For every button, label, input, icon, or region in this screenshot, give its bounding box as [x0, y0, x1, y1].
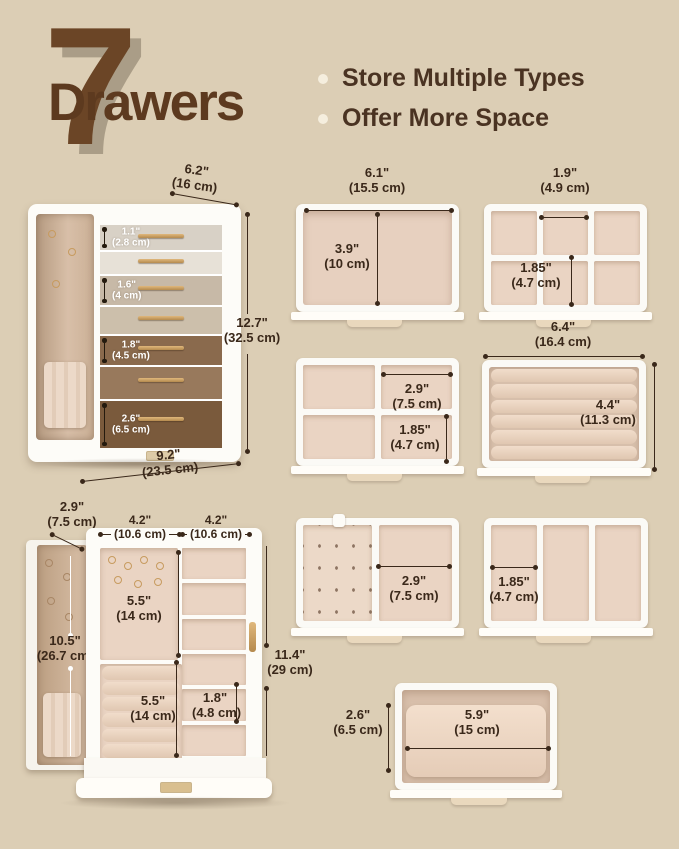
tray6-grid — [491, 525, 641, 621]
tray3-cell-depth-line — [446, 416, 447, 462]
tray4-handle-tab — [535, 476, 590, 483]
tray5-cell-width-label: 2.9"(7.5 cm) — [377, 574, 451, 604]
tray2-cell-width-label: 1.9"(4.9 cm) — [527, 166, 603, 196]
tray7-height-line — [388, 705, 389, 771]
tray2-cell — [594, 261, 640, 305]
height-bracket-line — [104, 404, 105, 445]
hook-area-height-label: 5.5"(14 cm) — [112, 594, 166, 624]
tray6-cell — [595, 525, 641, 621]
dim-bottom-width: 9.2"(23.5 cm) — [130, 444, 209, 481]
door-width-label: 2.9"(7.5 cm) — [44, 500, 100, 530]
dim-line — [169, 534, 180, 535]
feature-bullet-1: Store Multiple Types — [318, 64, 585, 93]
drawer-handle — [138, 346, 184, 350]
dim-top-width: 6.2"(16 cm) — [154, 158, 237, 198]
drawer-front-6 — [100, 367, 222, 399]
tray3-handle-tab — [347, 474, 402, 481]
drawer-front-3: 1.6"(4 cm) — [100, 276, 222, 305]
tray7-handle-tab — [451, 798, 507, 805]
necklace-hook-icon — [140, 556, 148, 564]
tray3-cell — [303, 415, 375, 459]
open-box-shadow — [58, 796, 292, 810]
dim-height: 12.7"(32.5 cm) — [222, 316, 282, 346]
door-height-line-lower — [70, 668, 71, 756]
height-bracket-line — [104, 339, 105, 362]
door-hook-icon — [47, 597, 55, 605]
necklace-hook-icon — [108, 556, 116, 564]
tray2-cell — [491, 211, 537, 255]
ring-roll — [102, 729, 180, 743]
shelf-column — [182, 548, 246, 756]
tray2-cell — [594, 211, 640, 255]
bullet-dot-icon — [318, 74, 328, 84]
tray2-cell-depth-line — [571, 257, 572, 305]
shelf-cell — [182, 548, 246, 579]
tray6-handle-tab — [536, 636, 591, 643]
tray2-cell-depth-label: 1.85"(4.7 cm) — [506, 261, 566, 291]
ring-roll — [491, 369, 637, 382]
tray4-depth-line — [654, 364, 655, 470]
dim-line — [100, 534, 111, 535]
tray5-handle-tab — [347, 636, 402, 643]
necklace-hook-icon — [124, 562, 132, 570]
drawer-front-7: 2.6"(6.5 cm) — [100, 401, 222, 448]
closed-jewelry-box: 1.1"(2.8 cm) 1.6"(4 cm) 1.8"(4.5 c — [28, 204, 241, 462]
shelf-cell — [182, 619, 246, 650]
necklace-hook-icon — [48, 230, 56, 238]
tray6-cell — [543, 525, 589, 621]
tray1-front-lip — [291, 312, 464, 320]
shelf-cell — [182, 654, 246, 685]
door-height-line-upper — [70, 556, 71, 636]
drawer-front-2 — [100, 252, 222, 274]
dim-height-line-lower — [247, 354, 248, 452]
product-infographic: 7 Drawers Store Multiple Types Offer Mor… — [0, 0, 679, 849]
drawer-front-5: 1.8"(4.5 cm) — [100, 336, 222, 365]
drawer-front-1: 1.1"(2.8 cm) — [100, 225, 222, 250]
door-hook-icon — [65, 613, 73, 621]
divider-clip — [333, 514, 345, 527]
tray1-depth-label: 3.9"(10 cm) — [320, 242, 374, 272]
roll-area-height-label: 5.5"(14 cm) — [124, 694, 182, 724]
tray7-front-lip — [390, 790, 562, 798]
right-width-dim: 4.2" (10.6 cm) — [182, 514, 250, 542]
tray2-grid — [491, 211, 640, 305]
fabric-pouch — [44, 362, 86, 428]
drawer-handle — [138, 378, 184, 382]
feature-bullet-2: Offer More Space — [318, 104, 549, 133]
tray4-width-label: 6.4"(16.4 cm) — [525, 320, 601, 350]
tray5-front-lip — [291, 628, 464, 636]
tray4-width-line — [485, 356, 643, 357]
drawer-handle — [138, 259, 184, 263]
door-hook-icon — [45, 559, 53, 567]
tray4-depth-label: 4.4"(11.3 cm) — [572, 398, 644, 428]
ring-roll — [102, 666, 180, 680]
total-height-line-upper — [266, 546, 267, 646]
shelf-height-label: 1.8"(4.8 cm) — [192, 691, 238, 721]
tray6-cell — [491, 525, 537, 621]
tray3-cell — [303, 365, 375, 409]
side-door-open — [36, 214, 94, 440]
tray2-cell-width-line — [541, 217, 587, 218]
height-bracket-line — [104, 228, 105, 247]
tray1-depth-line — [377, 214, 378, 304]
total-height-label: 11.4"(29 cm) — [262, 648, 318, 678]
tray3-front-lip — [291, 466, 464, 474]
tray5-cell-width-line — [378, 566, 450, 567]
shelf-cell — [182, 583, 246, 614]
tray7-height-label: 2.6"(6.5 cm) — [330, 708, 386, 738]
tray6-three-column-tray — [484, 518, 648, 628]
ring-roll — [491, 446, 637, 459]
feature-bullet-2-text: Offer More Space — [342, 104, 549, 133]
door-pouch — [43, 693, 81, 757]
tray2-six-cell-tray — [484, 204, 647, 312]
glass-door-handle — [249, 622, 256, 652]
tray5-earring-tray — [296, 518, 459, 628]
tray4-front-lip — [477, 468, 651, 476]
drawer-height-label: 1.1"(2.8 cm) — [112, 226, 150, 249]
feature-bullet-1-text: Store Multiple Types — [342, 64, 585, 93]
open-box-base-upper — [84, 758, 266, 778]
title-drawers: Drawers — [48, 72, 243, 133]
drawer-handle — [138, 286, 184, 290]
tray3-cell-depth-label: 1.85"(4.7 cm) — [387, 423, 443, 453]
necklace-hook-icon — [134, 580, 142, 588]
tray3-cell-width-line — [383, 374, 451, 375]
earring-hole-panel — [303, 525, 372, 621]
dim-line — [245, 534, 250, 535]
shelf-cell — [182, 725, 246, 756]
tray6-cell-width-label: 1.85"(4.7 cm) — [476, 575, 552, 605]
necklace-hook-icon — [52, 280, 60, 288]
tray1-handle-tab — [347, 320, 402, 327]
tray5-split — [303, 525, 452, 621]
drawer-front-stack: 1.1"(2.8 cm) 1.6"(4 cm) 1.8"(4.5 c — [100, 225, 222, 448]
necklace-hook-icon — [156, 562, 164, 570]
tray6-cell-width-line — [492, 567, 536, 568]
necklace-hook-icon — [114, 576, 122, 584]
left-width-dim: 4.2" (10.6 cm) — [100, 514, 180, 542]
ring-roll — [491, 430, 637, 443]
tray7-width-line — [407, 748, 549, 749]
drawer-handle — [138, 234, 184, 238]
ring-roll — [102, 744, 180, 758]
bullet-dot-icon — [318, 114, 328, 124]
tray5-divider — [372, 525, 379, 621]
tray6-front-lip — [479, 628, 653, 636]
drawer-handle — [138, 417, 184, 421]
necklace-hook-icon — [68, 248, 76, 256]
necklace-hook-icon — [154, 578, 162, 586]
tray1-width-line — [306, 210, 452, 211]
drawer-front-4 — [100, 307, 222, 334]
dim-line — [182, 534, 187, 535]
drawer-height-label: 1.8"(4.5 cm) — [112, 339, 150, 362]
base-brand-plate — [160, 782, 192, 793]
tray1-width-label: 6.1"(15.5 cm) — [337, 166, 417, 196]
total-height-line-lower — [266, 688, 267, 756]
height-bracket-line — [104, 279, 105, 302]
tray3-cell-width-label: 2.9"(7.5 cm) — [382, 382, 452, 412]
hook-area-height-line — [178, 552, 179, 656]
open-box-body — [86, 528, 262, 780]
drawer-handle — [138, 316, 184, 320]
ring-roll — [491, 384, 637, 397]
drawer-height-label: 1.6"(4 cm) — [112, 279, 141, 302]
tray7-width-label: 5.9"(15 cm) — [444, 708, 510, 738]
dim-height-line-upper — [247, 214, 248, 314]
